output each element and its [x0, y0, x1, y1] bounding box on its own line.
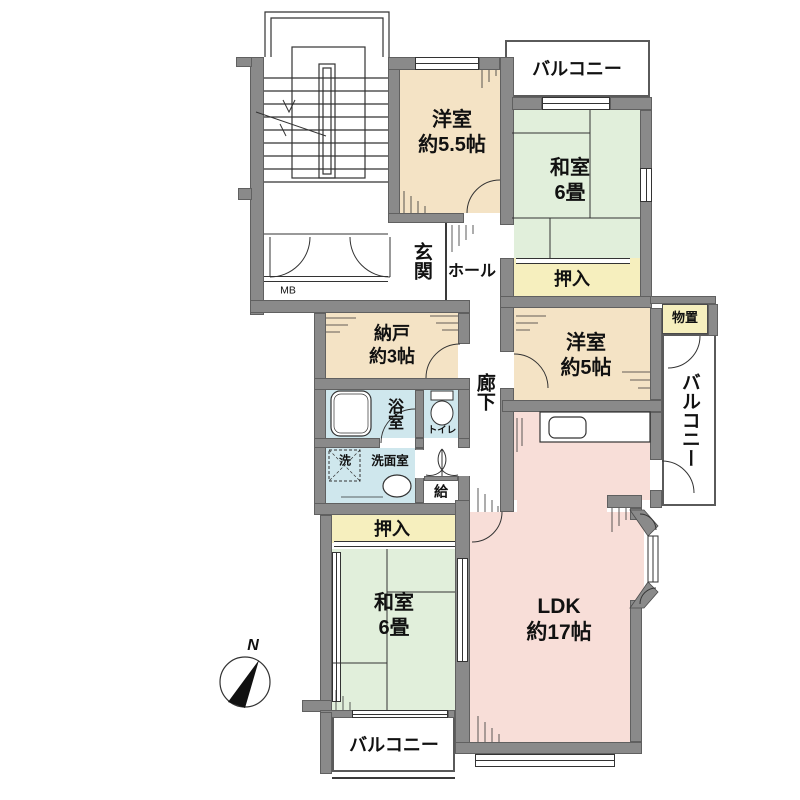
wall [650, 308, 662, 400]
door-opening [458, 448, 470, 476]
wall [388, 57, 416, 70]
label-hall: ホール [448, 262, 496, 282]
label-ldk: LDK 約17帖 [526, 594, 591, 647]
wall [314, 378, 470, 390]
room-size: 約17帖 [526, 620, 591, 646]
wall [500, 296, 652, 308]
wall [314, 313, 326, 513]
door-opening [464, 213, 500, 223]
closet-sliding-front [334, 541, 455, 547]
window [542, 97, 610, 110]
label-toilet: トイレ [428, 425, 457, 437]
door-opening [500, 225, 514, 258]
wall [388, 213, 464, 223]
label-balcony-bottom: バルコニー [349, 734, 439, 757]
wall [424, 476, 458, 481]
wall [607, 495, 642, 508]
room-name: 和室 [374, 591, 414, 616]
wall [236, 57, 252, 67]
label-japanese-top: 和室 6畳 [550, 156, 590, 206]
wall [415, 438, 424, 448]
window [352, 710, 448, 718]
compass [220, 657, 270, 708]
wall [238, 188, 252, 200]
door-opening [650, 460, 662, 490]
room-size: 6畳 [550, 181, 590, 206]
wall [458, 438, 470, 448]
floor-plan: 洋室 約5.5帖 和室 6畳 押入 洋室 約5帖 納戸 約3帖 物置 玄関 ホー… [0, 0, 800, 800]
wall [250, 300, 470, 313]
room-name: 納戸 [369, 323, 415, 346]
window [415, 57, 479, 70]
room-name: LDK [526, 594, 591, 620]
wall [320, 515, 332, 715]
room-name: 和室 [550, 156, 590, 181]
room-kitchen [512, 412, 650, 500]
label-nando: 納戸 約3帖 [369, 323, 415, 368]
door-opening [424, 438, 458, 448]
label-western-5-5: 洋室 約5.5帖 [418, 108, 486, 158]
room-name: 洋室 [418, 108, 486, 133]
label-bath: 浴室 [383, 398, 403, 430]
label-compass-north: N [247, 636, 259, 656]
meter-box-line [264, 276, 388, 282]
room-name: 洋室 [560, 331, 611, 356]
label-water-supply: 給 [434, 483, 448, 501]
label-genkan: 玄関 [409, 242, 433, 280]
genkan-step-line [445, 223, 447, 300]
label-corridor: 廊下 [472, 373, 496, 411]
wall [455, 742, 642, 754]
wall [650, 296, 716, 304]
label-closet-bottom: 押入 [374, 518, 410, 541]
door-opening [380, 438, 415, 448]
staircase [256, 12, 390, 277]
label-monooki: 物置 [672, 310, 698, 326]
wall [610, 97, 652, 110]
wall [415, 390, 424, 438]
wall [448, 710, 455, 718]
wall [500, 57, 514, 225]
room-size: 約5.5帖 [418, 133, 486, 158]
room-size: 約5帖 [560, 356, 611, 381]
wall [630, 600, 642, 742]
wall [479, 57, 500, 70]
wall [640, 110, 652, 300]
wall [388, 57, 400, 223]
sliding-door [457, 558, 468, 662]
wall [502, 400, 662, 412]
label-balcony-right: バルコニー [677, 373, 701, 468]
room-size: 約3帖 [369, 345, 415, 368]
label-western-5: 洋室 約5帖 [560, 331, 611, 381]
balcony-bottom-edge-line [332, 777, 455, 779]
wall [708, 304, 718, 336]
door-opening [458, 344, 470, 378]
wall [314, 503, 470, 515]
wall [630, 508, 642, 520]
wall [650, 490, 662, 508]
room-size: 6畳 [374, 616, 414, 641]
door-opening [500, 352, 514, 388]
window-sill [475, 754, 615, 767]
room-ldk-pass [517, 500, 607, 512]
label-washroom: 洗面室 [371, 454, 409, 470]
label-washer: 洗 [339, 454, 351, 469]
wall [650, 412, 662, 460]
closet-sliding-front [516, 258, 630, 264]
room-ldk-bay [630, 514, 644, 606]
wall [458, 313, 470, 344]
label-balcony-top: バルコニー [532, 58, 622, 81]
window [640, 168, 652, 202]
wall [320, 712, 332, 774]
label-meter-box: MB [280, 284, 296, 297]
wall [512, 97, 542, 110]
wall [250, 57, 264, 315]
label-closet-top: 押入 [554, 268, 590, 291]
door-opening [415, 450, 424, 478]
label-japanese-bottom: 和室 6畳 [374, 591, 414, 641]
window [332, 552, 341, 702]
wall [314, 438, 380, 448]
